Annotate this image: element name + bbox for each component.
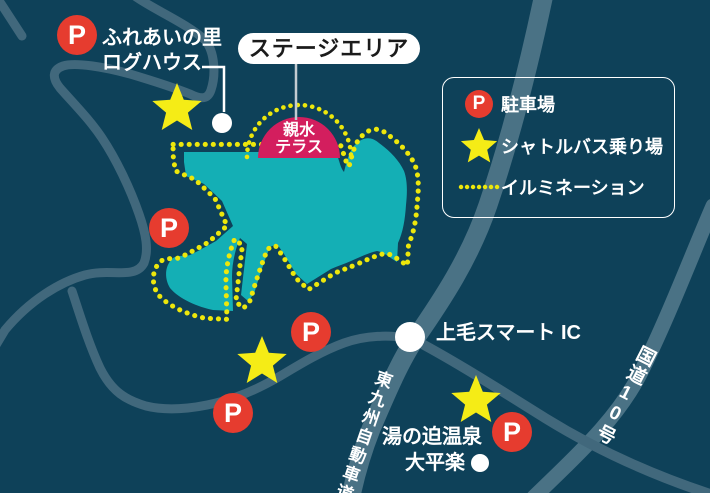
parking-marker: P <box>57 15 97 55</box>
onsen-label-line2: 大平楽 <box>405 452 465 474</box>
parking-marker: P <box>291 312 331 352</box>
stage-area-callout: ステージエリア <box>238 33 420 64</box>
shuttle-bus-star-marker <box>236 335 288 392</box>
parking-marker: P <box>213 393 253 433</box>
legend-row-illumination: イルミネーション <box>457 174 674 200</box>
onsen-label: 湯の迫温泉 大平楽 <box>387 424 483 476</box>
shuttle-bus-star-marker <box>151 82 203 139</box>
loghouse-label: ふれあいの里 ログハウス <box>102 26 222 76</box>
loghouse-label-line2: ログハウス <box>102 51 222 76</box>
legend-row-shuttle: シャトルバス乗り場 <box>457 127 674 165</box>
map-point-marker <box>471 454 489 472</box>
lake-area <box>166 138 407 311</box>
shuttle-bus-star-marker <box>450 374 502 431</box>
parking-marker: P <box>149 208 189 248</box>
terrace-label: 親水 テラス <box>255 122 343 156</box>
road <box>0 0 22 36</box>
map-point-marker <box>395 322 425 352</box>
loghouse-label-line1: ふれあいの里 <box>102 26 222 51</box>
legend-label-parking: 駐車場 <box>501 91 555 117</box>
event-area-map: ステージエリア 親水 テラス ふれあいの里 ログハウス 上毛スマート IC 東九… <box>0 0 710 493</box>
terrace-label-line2: テラス <box>255 139 343 156</box>
legend-row-parking: P 駐車場 <box>457 90 674 118</box>
map-legend: P 駐車場 シャトルバス乗り場 イルミネーション <box>442 77 675 218</box>
shuttle-bus-star-icon <box>457 127 501 165</box>
illumination-dots-icon <box>457 183 501 191</box>
parking-icon: P <box>457 90 501 118</box>
smart-ic-label: 上毛スマート IC <box>436 316 581 345</box>
map-point-marker <box>212 113 232 133</box>
legend-label-shuttle: シャトルバス乗り場 <box>501 133 663 159</box>
terrace-label-line1: 親水 <box>255 122 343 139</box>
route10-road <box>534 206 710 493</box>
legend-label-illumination: イルミネーション <box>501 174 645 200</box>
